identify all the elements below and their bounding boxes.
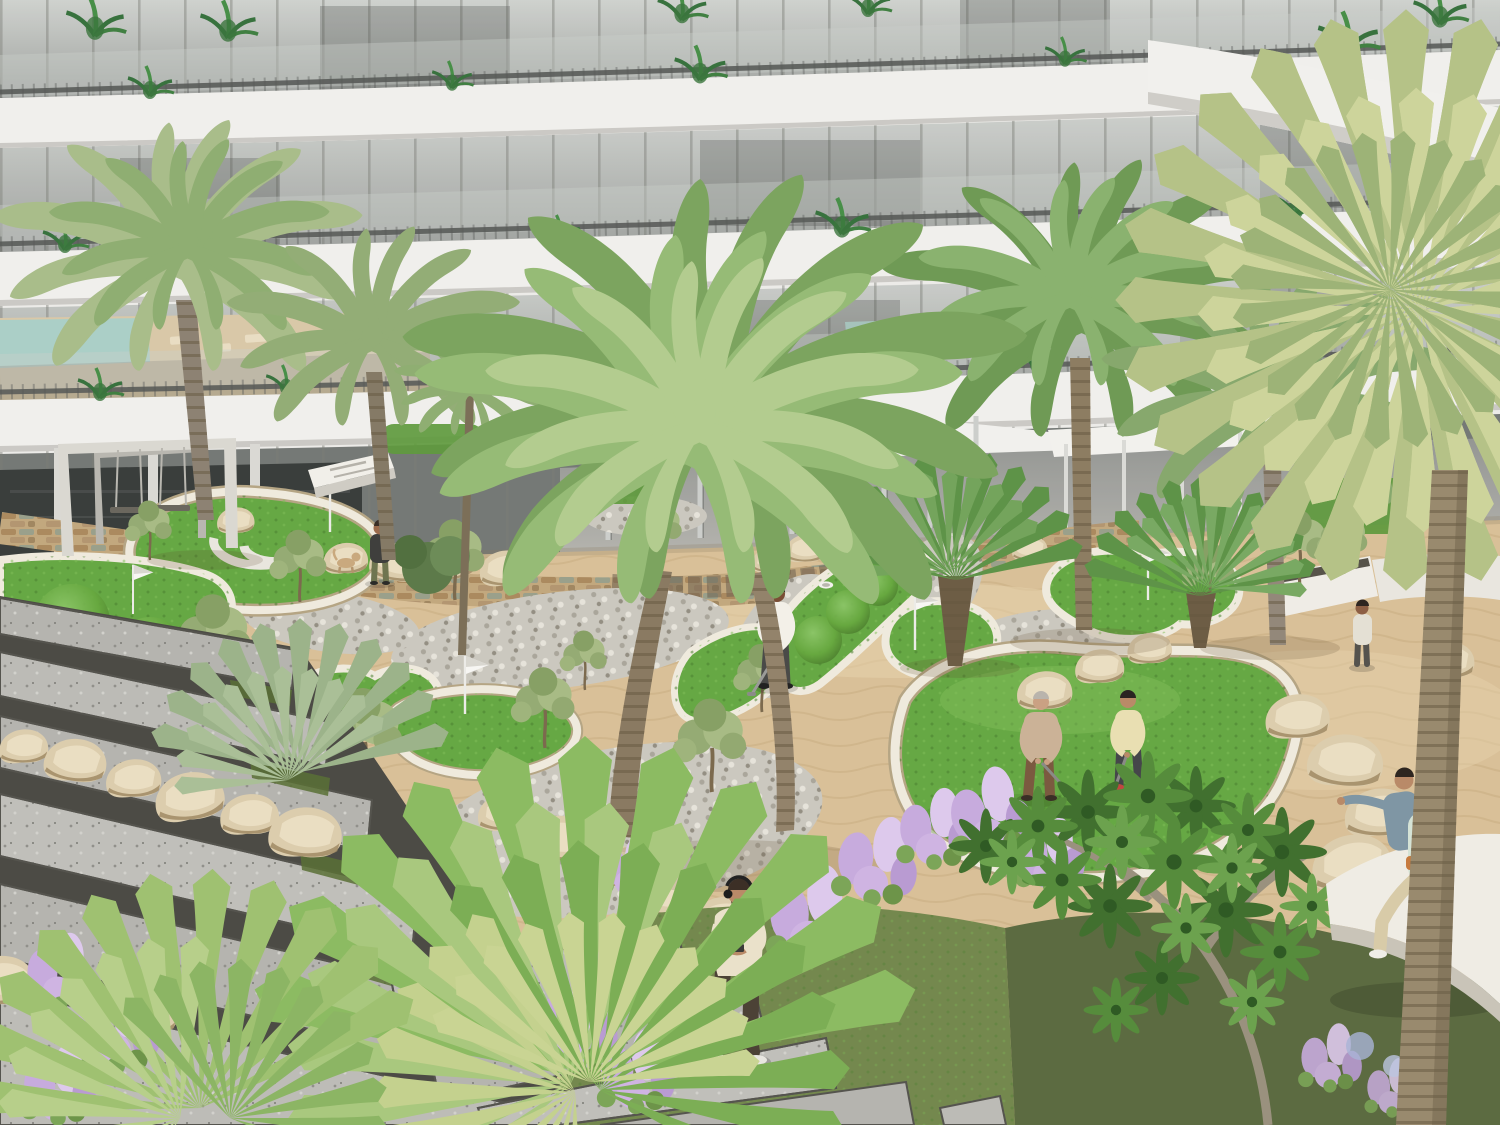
scene-canvas <box>0 0 1500 1125</box>
resort-rendering: Photorealistic architectural rendering: … <box>0 0 1500 1125</box>
hole-plate <box>819 581 833 588</box>
